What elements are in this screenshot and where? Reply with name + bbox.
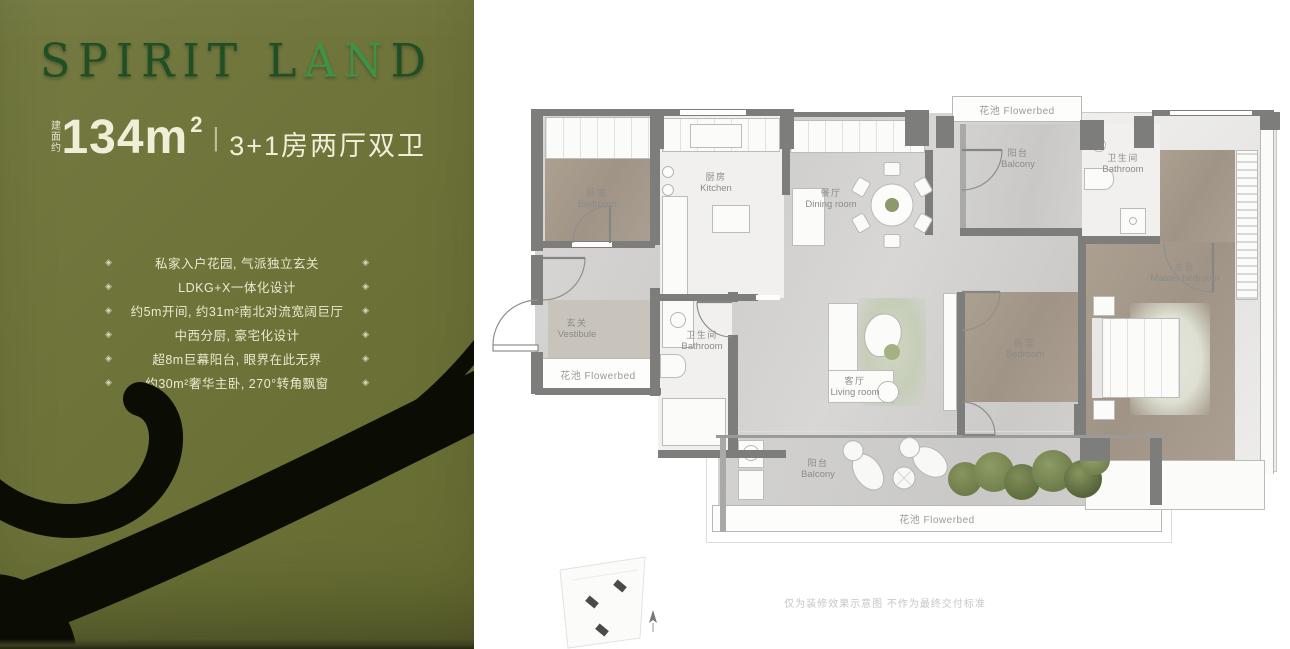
area-row: 建面约 134m 2 | 3+1房两厅双卫 [0,114,474,163]
floor-plan: 花池 Flowerbed 花池 Flowerbed 花池 Flowerbed [480,0,1290,649]
layout-description: 3+1房两厅双卫 [229,124,426,163]
area-prefix: 建面约 [48,120,59,153]
area-value: 134m [61,114,188,162]
feature-item: ◈私家入户花园, 气派独立玄关◈ [105,255,369,269]
room-label-bedroom-tl: 卧室Bedroom [557,188,637,210]
room-label-balcony-bottom: 阳台Balcony [778,458,858,480]
room-label-dining: 餐厅Dining room [791,188,871,210]
feature-item: ◈LDKG+X一体化设计◈ [105,279,369,293]
room-label-bathroom-mid: 卫生间Bathroom [662,330,742,352]
area-divider: | [212,122,219,153]
branch-silhouette-art [0,329,474,649]
entrance-door-leaf [493,345,538,351]
diamond-bullet-icon: ◈ [362,305,369,316]
site-sketch [560,557,645,648]
poster: SPIRIT LAND 建面约 134m 2 | 3+1房两厅双卫 ◈私家入户花… [0,0,1290,649]
room-label-living: 客厅Living room [815,376,895,398]
panel-bottom-shade [0,639,474,649]
coffee-table [865,314,902,360]
room-label-bathroom-top: 卫生间Bathroom [1083,153,1163,175]
brand-seg3: D [391,35,434,88]
brand-title: SPIRIT LAND [0,35,474,88]
disclaimer-text: 仅为装修效果示意图 不作为最终交付标准 [730,595,1040,610]
area-superscript: 2 [190,112,202,138]
diamond-bullet-icon: ◈ [105,257,112,268]
brand-seg2: AN [304,35,390,88]
diamond-bullet-icon: ◈ [105,305,112,316]
room-label-kitchen: 厨房Kitchen [676,172,756,194]
room-label-balcony-top: 阳台Balcony [978,148,1058,170]
left-panel: SPIRIT LAND 建面约 134m 2 | 3+1房两厅双卫 ◈私家入户花… [0,0,474,649]
diamond-bullet-icon: ◈ [105,281,112,292]
room-label-vestibule: 玄关Vestibule [537,318,617,340]
diamond-bullet-icon: ◈ [362,281,369,292]
room-label-master: 主卧Master bedroom [1135,262,1235,284]
north-arrow-icon [649,610,657,632]
room-label-bedroom-r: 卧室Bedroom [985,338,1065,360]
brand-seg1: SPIRIT L [40,35,304,88]
diamond-bullet-icon: ◈ [362,257,369,268]
feature-item: ◈约5m开间, 约31m²南北对流宽阔巨厅◈ [105,303,369,317]
